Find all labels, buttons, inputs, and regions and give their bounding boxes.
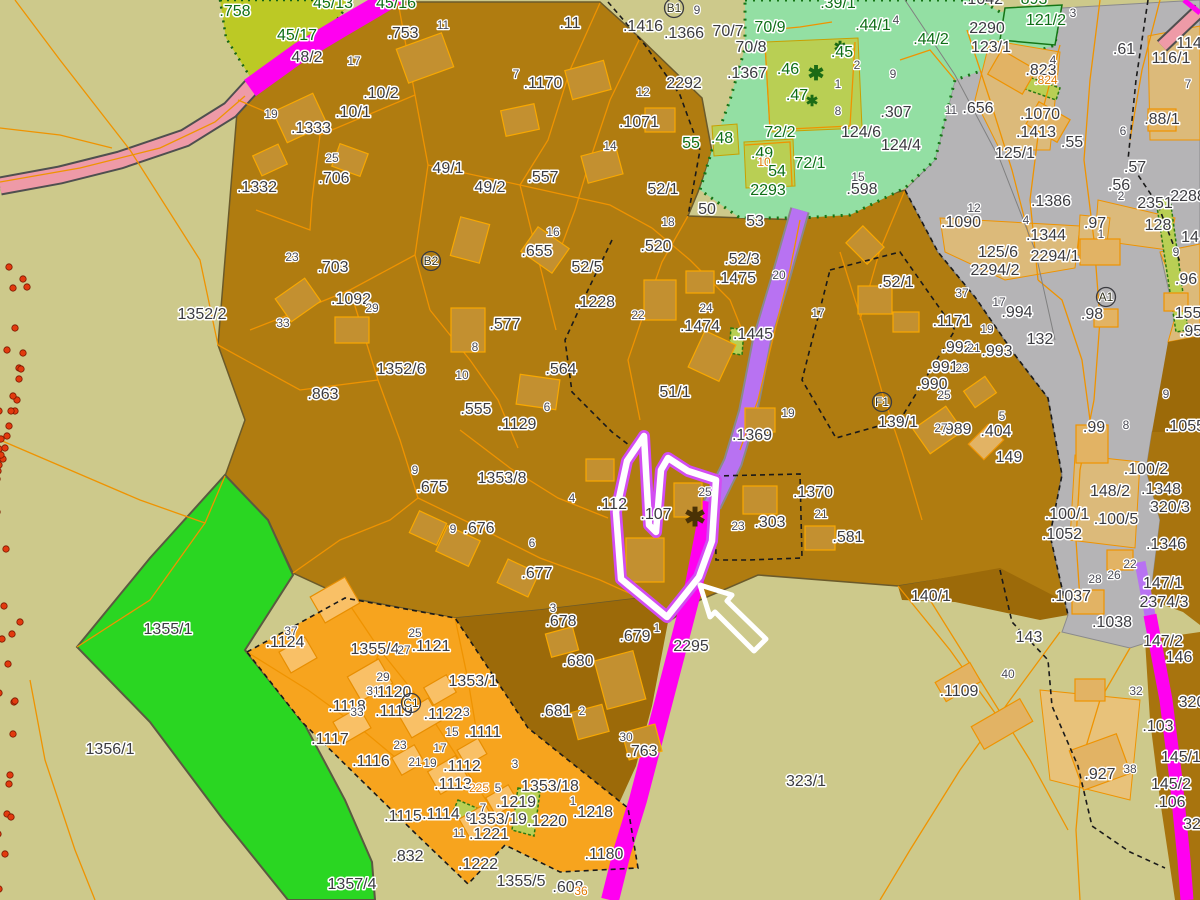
- parcel-label-1355/5-261: 1355/5: [497, 873, 546, 890]
- parcel-label-2351-83: 2351: [1137, 195, 1173, 212]
- parcel-label-.1220-256: .1220: [527, 813, 567, 830]
- parcel-label-14-88: 14: [1181, 229, 1199, 246]
- parcel-label-51/1-184: 51/1: [659, 384, 690, 401]
- parcel-label-.1386-85: .1386: [1031, 193, 1071, 210]
- parcel-label-.1090-93: .1090: [941, 214, 981, 231]
- parcel-label-320-147: 320: [1179, 694, 1200, 711]
- parcel-label-124/6-56: 124/6: [841, 124, 881, 141]
- house-point-180: [9, 631, 15, 637]
- block-marker-label-B2: B2: [424, 254, 439, 268]
- parcel-label-.48-35: .48: [711, 130, 733, 147]
- parcel-label-.103-146: .103: [1142, 718, 1173, 735]
- parcel-label-17-10: 17: [347, 54, 361, 68]
- parcel-label-9-59: 9: [890, 67, 897, 81]
- parcel-label-2294/2-99: 2294/2: [971, 262, 1020, 279]
- parcel-label-5-243: 5: [495, 781, 502, 795]
- block-marker-label-B1: B1: [667, 1, 682, 15]
- parcel-label-.679-206: .679: [619, 628, 650, 645]
- parcel-label-.758-0: .758: [219, 3, 250, 20]
- parcel-label-.1474-178: .1474: [680, 318, 720, 335]
- parcel-label-23-112: 23: [955, 361, 969, 375]
- parcel-label-22-180: 22: [631, 308, 645, 322]
- parcel-label-.1042-62: .1042: [963, 0, 1003, 8]
- asterisk-symbol-3: ✱: [684, 502, 706, 532]
- parcel-label-.44/1-47: .44/1: [855, 17, 891, 34]
- parcel-label-323/1-214: 323/1: [786, 773, 826, 790]
- parcel-label-128-87: 128: [1145, 217, 1172, 234]
- parcel-label-15-61: 15: [851, 170, 865, 184]
- block-marker-label-A1: A1: [1099, 290, 1114, 304]
- parcel-label-116/1-67: 116/1: [1152, 50, 1191, 67]
- parcel-label-.581-203: .581: [832, 529, 863, 546]
- parcel-label-.11-20: .11: [559, 15, 580, 32]
- parcel-label-6-79: 6: [1120, 124, 1127, 138]
- asterisk-symbol-0: ✱: [808, 63, 825, 85]
- parcel-label-11-249: 11: [453, 826, 466, 840]
- parcel-label-.404-117: .404: [980, 423, 1011, 440]
- parcel-label-29-224: 29: [376, 670, 390, 684]
- parcel-label-23-155: 23: [285, 250, 299, 264]
- house-point-234: [6, 423, 12, 429]
- parcel-label-15-236: 15: [445, 725, 459, 739]
- building-16: [626, 538, 664, 582]
- building-18: [743, 486, 777, 514]
- building-59: [1075, 679, 1105, 701]
- parcel-label-48/2-4: 48/2: [291, 49, 322, 66]
- parcel-label-155-91: 155: [1175, 305, 1200, 322]
- parcel-label-.1333-9: .1333: [291, 120, 331, 137]
- parcel-label-148/2-126: 148/2: [1090, 483, 1130, 500]
- parcel-label-.675-189: .675: [416, 479, 447, 496]
- parcel-label-.1348-125: .1348: [1141, 481, 1181, 498]
- parcel-label-19-106: 19: [980, 322, 994, 336]
- parcel-label-.88/1-77: .88/1: [1144, 111, 1180, 128]
- parcel-label-.1109-143: .1109: [940, 683, 979, 700]
- parcel-label-.44/2-49: .44/2: [913, 31, 949, 48]
- parcel-label-33-229: 33: [350, 705, 364, 719]
- building-21: [893, 312, 919, 332]
- parcel-label-72/2-40: 72/2: [764, 124, 795, 141]
- parcel-label-.1112-240: .1112: [443, 758, 481, 775]
- parcel-label-30-212: 30: [619, 730, 633, 744]
- parcel-label-.46-43: .46: [777, 61, 799, 78]
- parcel-label-.1180-259: .1180: [585, 846, 624, 863]
- parcel-label-.45-44: .45: [831, 44, 853, 61]
- parcel-label-5-118: 5: [999, 409, 1006, 423]
- parcel-label-.107-197: .107: [640, 506, 671, 523]
- parcel-label-121/2-51: 121/2: [1026, 12, 1066, 29]
- parcel-label-.307-58: .307: [880, 104, 911, 121]
- parcel-label-893-50: 893: [1021, 0, 1048, 8]
- parcel-label-37-102: 37: [955, 286, 969, 300]
- parcel-label-.1038-141: .1038: [1092, 614, 1132, 631]
- building-19: [805, 526, 835, 550]
- house-point-174: [5, 661, 11, 667]
- parcel-label-.1475-176: .1475: [716, 270, 756, 287]
- parcel-label-12-30: 12: [636, 85, 650, 99]
- house-point-10: [4, 347, 10, 353]
- parcel-label-.520-173: .520: [640, 238, 671, 255]
- parcel-label-25-198: 25: [698, 485, 712, 499]
- house-point-202: [8, 814, 14, 820]
- parcel-label-.10/2-13: .10/2: [363, 85, 399, 102]
- parcel-label-22-132: 22: [1123, 557, 1137, 571]
- parcel-label-.61-65: .61: [1113, 41, 1135, 58]
- parcel-label-149-119: 149: [996, 449, 1023, 466]
- parcel-label-21-202: 21: [814, 507, 828, 521]
- parcel-label-10-161: 10: [455, 368, 469, 382]
- house-point-199: [10, 731, 16, 737]
- parcel-label-.681-209: .681: [540, 703, 571, 720]
- parcel-label-1352/2-159: 1352/2: [178, 306, 227, 323]
- parcel-label-17-105: 17: [992, 295, 1006, 309]
- parcel-label-.1228-172: .1228: [575, 294, 615, 311]
- house-point-235: [4, 433, 10, 439]
- house-point-158: [20, 276, 26, 282]
- parcel-label-.994-104: .994: [1001, 304, 1032, 321]
- parcel-label-49/2-16: 49/2: [474, 179, 505, 196]
- parcel-label-145/2-151: 145/2: [1151, 776, 1191, 793]
- parcel-label-.1221-250: .1221: [469, 826, 509, 843]
- parcel-label-2294/1-100: 2294/1: [1031, 248, 1080, 265]
- parcel-label-45/17-3: 45/17: [277, 27, 317, 44]
- parcel-label-25-11: 25: [325, 151, 339, 165]
- parcel-label-.1070-73: .1070: [1020, 106, 1060, 123]
- parcel-label-.1332-7: .1332: [237, 179, 277, 196]
- house-point-236: [2, 445, 8, 451]
- house-point-30: [0, 636, 5, 642]
- parcel-label-.1037-140: .1037: [1051, 588, 1091, 605]
- parcel-label-.1111-239: .1111: [465, 724, 502, 741]
- building-10: [335, 317, 369, 343]
- parcel-label-.678-205: .678: [545, 613, 576, 630]
- parcel-label-.1370-201: .1370: [793, 484, 833, 501]
- parcel-label-.555-163: .555: [460, 401, 491, 418]
- parcel-label-.303-200: .303: [754, 514, 785, 531]
- parcel-label-145/1-150: 145/1: [1161, 749, 1200, 766]
- parcel-label-25-114: 25: [937, 388, 951, 402]
- parcel-label-28-134: 28: [1088, 572, 1102, 586]
- parcel-label-.680-208: .680: [562, 653, 593, 670]
- parcel-label-1-207: 1: [654, 621, 661, 635]
- parcel-label-4-69: 4: [1050, 53, 1057, 67]
- parcel-label-.1129-168: .1129: [498, 416, 537, 433]
- parcel-label-9-89: 9: [1173, 245, 1180, 259]
- parcel-label-72/1-41: 72/1: [794, 155, 825, 172]
- building-12: [644, 280, 676, 320]
- parcel-label-26-133: 26: [1107, 568, 1121, 582]
- parcel-label-29-157: 29: [365, 301, 379, 315]
- parcel-label-70/8-26: 70/8: [735, 39, 766, 56]
- parcel-label-18-174: 18: [661, 215, 675, 229]
- parcel-label-45/16-2: 45/16: [376, 0, 416, 12]
- parcel-label-.95-92: .95: [1180, 323, 1200, 340]
- parcel-label-2293-39: 2293: [750, 182, 786, 199]
- parcel-label-17-183: 17: [811, 306, 825, 320]
- parcel-label-21-233: 21: [408, 755, 422, 769]
- parcel-label-.100/1-128: .100/1: [1045, 506, 1090, 523]
- parcel-label-.52/3-175: .52/3: [724, 251, 760, 268]
- parcel-label-.100/5-129: .100/5: [1094, 511, 1139, 528]
- parcel-label-32-145: 32: [1129, 684, 1143, 698]
- parcel-label-143-142: 143: [1016, 629, 1043, 646]
- house-point-225: [18, 366, 24, 372]
- parcel-label-6-194: 6: [529, 536, 536, 550]
- house-point-249: [0, 452, 4, 458]
- parcel-label-24-179: 24: [699, 301, 713, 315]
- cadastral-map-canvas[interactable]: ✱✱✱✱.75845/1345/1645/1748/2.75311.133219…: [0, 0, 1200, 900]
- parcel-label-11-72: 11: [945, 103, 958, 117]
- parcel-label-.677-193: .677: [521, 565, 552, 582]
- parcel-label-.656-71: .656: [962, 100, 993, 117]
- parcel-label-125/1-75: 125/1: [995, 145, 1035, 162]
- parcel-label-36-263: 36: [574, 884, 588, 898]
- parcel-label-.1416-22: .1416: [623, 18, 663, 35]
- house-point-233: [8, 408, 14, 414]
- parcel-label-.703-154: .703: [317, 259, 348, 276]
- parcel-label-4-48: 4: [893, 13, 900, 27]
- parcel-label-1356/1-218: 1356/1: [86, 741, 135, 758]
- parcel-label-140/1-139: 140/1: [911, 588, 951, 605]
- parcel-label-49/1-15: 49/1: [432, 160, 463, 177]
- parcel-label-23-199: 23: [731, 519, 745, 533]
- parcel-label-.1114-247: .1114: [422, 806, 460, 823]
- house-point-170: [3, 546, 9, 552]
- parcel-label-1-97: 1: [1098, 227, 1105, 241]
- parcel-label-225-244: 225: [469, 781, 489, 795]
- parcel-label-.96-90: .96: [1175, 271, 1197, 288]
- parcel-label-.1071-29: .1071: [619, 114, 659, 131]
- building-13: [686, 271, 714, 293]
- parcel-label-.1115-248: .1115: [384, 808, 422, 825]
- parcel-label-9-190: 9: [412, 463, 419, 477]
- parcel-label-53-33: 53: [746, 213, 764, 230]
- building-6: [516, 374, 560, 409]
- parcel-label-.706-12: .706: [318, 170, 349, 187]
- parcel-label-.993-109: .993: [981, 343, 1012, 360]
- parcel-label-2290-63: 2290: [969, 20, 1005, 37]
- parcel-label-.98-101: .98: [1081, 306, 1103, 323]
- parcel-label-54-38: 54: [768, 163, 786, 180]
- parcel-label-9-123: 9: [1163, 387, 1170, 401]
- parcel-label-8-121: 8: [1123, 418, 1130, 432]
- house-point-198: [12, 698, 18, 704]
- parcel-label-1355/4-220: 1355/4: [351, 641, 400, 658]
- parcel-label-.1344-95: .1344: [1026, 227, 1066, 244]
- parcel-label-1353/8-188: 1353/8: [478, 470, 527, 487]
- parcel-label-.577-164: .577: [489, 316, 520, 333]
- parcel-label-.1116-231: .1116: [352, 753, 390, 770]
- parcel-label-1353/1-252: 1353/1: [449, 673, 498, 690]
- house-point-224: [16, 376, 22, 382]
- parcel-label-23-232: 23: [393, 738, 407, 752]
- parcel-label-320/3-127: 320/3: [1150, 499, 1190, 516]
- house-point-11: [12, 325, 18, 331]
- parcel-label-.1052-130: .1052: [1042, 526, 1082, 543]
- parcel-label-70/7-25: 70/7: [712, 23, 743, 40]
- parcel-label-.927-148: .927: [1084, 766, 1115, 783]
- building-5: [451, 308, 485, 352]
- building-15: [586, 459, 614, 481]
- parcel-label-.676-191: .676: [463, 520, 494, 537]
- parcel-label-38-149: 38: [1123, 762, 1137, 776]
- parcel-label-.1219-254: .1219: [496, 794, 536, 811]
- parcel-label-.655-169: .655: [521, 243, 552, 260]
- parcel-label-.564-166: .564: [545, 361, 576, 378]
- parcel-label-.106-152: .106: [1154, 794, 1185, 811]
- parcel-label-70/9-42: 70/9: [754, 19, 785, 36]
- parcel-label-139/1-187: 139/1: [878, 414, 918, 431]
- parcel-label-1357/4-219: 1357/4: [328, 876, 377, 893]
- parcel-label-1352/6-160: 1352/6: [377, 361, 426, 378]
- parcel-label-1353/18-253: 1353/18: [521, 778, 579, 795]
- parcel-label-.1346-131: .1346: [1146, 536, 1186, 553]
- parcel-label-50-32: 50: [698, 201, 716, 218]
- parcel-label-.1218-258: .1218: [573, 804, 613, 821]
- parcel-label-1355/1-215: 1355/1: [144, 621, 193, 638]
- parcel-label-.1366-23: .1366: [664, 25, 704, 42]
- parcel-label-.39/1-46: .39/1: [820, 0, 856, 12]
- parcel-label-37-217: 37: [284, 624, 298, 638]
- house-point-229: [20, 350, 26, 356]
- parcel-label-.100/2-124: .100/2: [1124, 461, 1169, 478]
- parcel-label-.753-5: .753: [387, 25, 418, 42]
- parcel-label-11-6: 11: [437, 18, 450, 32]
- parcel-label-125/6-98: 125/6: [978, 244, 1018, 261]
- parcel-label-27-116: 27: [934, 421, 948, 435]
- parcel-label-8-165: 8: [472, 340, 479, 354]
- parcel-label-2295-213: 2295: [673, 638, 709, 655]
- parcel-label-.112-196: .112: [597, 496, 627, 513]
- parcel-label-.99-120: .99: [1083, 419, 1105, 436]
- parcel-label-21-108: 21: [967, 341, 981, 355]
- parcel-label-33-158: 33: [276, 316, 290, 330]
- parcel-label-14-21: 14: [603, 139, 617, 153]
- parcel-label-147/1-135: 147/1: [1143, 575, 1183, 592]
- parcel-label-.1445-181: .1445: [733, 326, 773, 343]
- parcel-label-123/1-64: 123/1: [971, 39, 1011, 56]
- parcel-label-.1055-122: .1055: [1165, 418, 1200, 435]
- parcel-label-.763-211: .763: [626, 743, 657, 760]
- parcel-label-.1170-19: .1170: [524, 75, 563, 92]
- parcel-label-4-195: 4: [569, 491, 576, 505]
- parcel-label-.1367-27: .1367: [727, 65, 767, 82]
- parcel-label-7-18: 7: [513, 67, 520, 81]
- parcel-label-.52/1-182: .52/1: [878, 274, 914, 291]
- parcel-label-2374/3-136: 2374/3: [1140, 594, 1189, 611]
- parcel-label-.557-17: .557: [527, 169, 558, 186]
- parcel-label-2288-84: 2288: [1170, 188, 1200, 205]
- parcel-label-.991-111: .991: [927, 359, 958, 376]
- parcel-label-19-8: 19: [264, 107, 278, 121]
- house-point-217: [24, 284, 30, 290]
- parcel-label-8-55: 8: [835, 104, 842, 118]
- parcel-label-52/1-31: 52/1: [647, 181, 678, 198]
- parcel-label-.57-80: .57: [1124, 159, 1146, 176]
- parcel-label-.824-70: .824: [1034, 73, 1058, 87]
- parcel-label-.1121-223: .1121: [412, 638, 451, 655]
- parcel-label-45/13-1: 45/13: [313, 0, 353, 12]
- parcel-label-20-177: 20: [772, 268, 786, 282]
- block-marker-label-C1: C1: [403, 696, 419, 710]
- parcel-label-3-241: 3: [512, 757, 519, 771]
- parcel-label-32-153: 32: [1183, 816, 1200, 833]
- parcel-label-19-234: 19: [423, 756, 437, 770]
- house-point-232: [10, 393, 16, 399]
- parcel-label-2-82: 2: [1118, 189, 1125, 203]
- parcel-label-4-94: 4: [1023, 213, 1030, 227]
- parcel-label-55-34: 55: [682, 135, 700, 152]
- parcel-label-.1413-74: .1413: [1016, 124, 1056, 141]
- parcel-label-132-110: 132: [1027, 331, 1054, 348]
- parcel-label-40-144: 40: [1001, 667, 1015, 681]
- parcel-label-124/4-57: 124/4: [881, 137, 921, 154]
- building-48: [1080, 239, 1120, 265]
- parcel-label-12-86: 12: [967, 201, 981, 215]
- house-point-155: [10, 285, 16, 291]
- house-point-8: [6, 264, 12, 270]
- parcel-label-3-52: 3: [1070, 6, 1077, 20]
- parcel-label-17-235: 17: [433, 741, 447, 755]
- parcel-label-.47-45: .47: [786, 87, 808, 104]
- parcel-label-2-210: 2: [579, 704, 586, 718]
- house-point-61: [2, 851, 8, 857]
- house-point-177: [7, 772, 13, 778]
- parcel-label-16-170: 16: [546, 225, 560, 239]
- parcel-label-2-53: 2: [854, 58, 861, 72]
- parcel-label-.1117-230: .1117: [311, 731, 349, 748]
- parcel-label-.1222-251: .1222: [458, 856, 498, 873]
- parcel-label-6-167: 6: [544, 400, 551, 414]
- house-point-186: [6, 781, 12, 787]
- parcel-label-27-222: 27: [397, 643, 411, 657]
- parcel-label-9-24: 9: [694, 3, 701, 17]
- house-point-21: [1, 603, 7, 609]
- parcel-label-.1171-103: .1171: [933, 313, 972, 330]
- parcel-label-.10/1-14: .10/1: [335, 104, 371, 121]
- parcel-label-9-192: 9: [450, 522, 457, 536]
- parcel-label-7-78: 7: [1185, 77, 1192, 91]
- house-point-212: [17, 619, 23, 625]
- parcel-label-52/5-171: 52/5: [571, 259, 602, 276]
- parcel-label-146-138: 146: [1166, 649, 1193, 666]
- parcel-label-.1122-238: .1122: [424, 706, 463, 723]
- cadastral-map-viewport[interactable]: ✱✱✱✱.75845/1345/1645/1748/2.75311.133219…: [0, 0, 1200, 900]
- parcel-label-1353/19-255: 1353/19: [469, 811, 527, 828]
- parcel-label-1-54: 1: [835, 77, 842, 91]
- parcel-label-.1113-242: .1113: [434, 776, 472, 793]
- parcel-label-.1369-185: .1369: [732, 427, 772, 444]
- block-marker-label-F1: F1: [875, 395, 889, 409]
- parcel-label-19-186: 19: [781, 406, 795, 420]
- parcel-label-147/2-137: 147/2: [1143, 633, 1183, 650]
- parcel-label-.832-260: .832: [392, 848, 423, 865]
- parcel-label-2292-28: 2292: [666, 75, 702, 92]
- parcel-label-.863-162: .863: [307, 386, 338, 403]
- parcel-label-.55-76: .55: [1061, 134, 1083, 151]
